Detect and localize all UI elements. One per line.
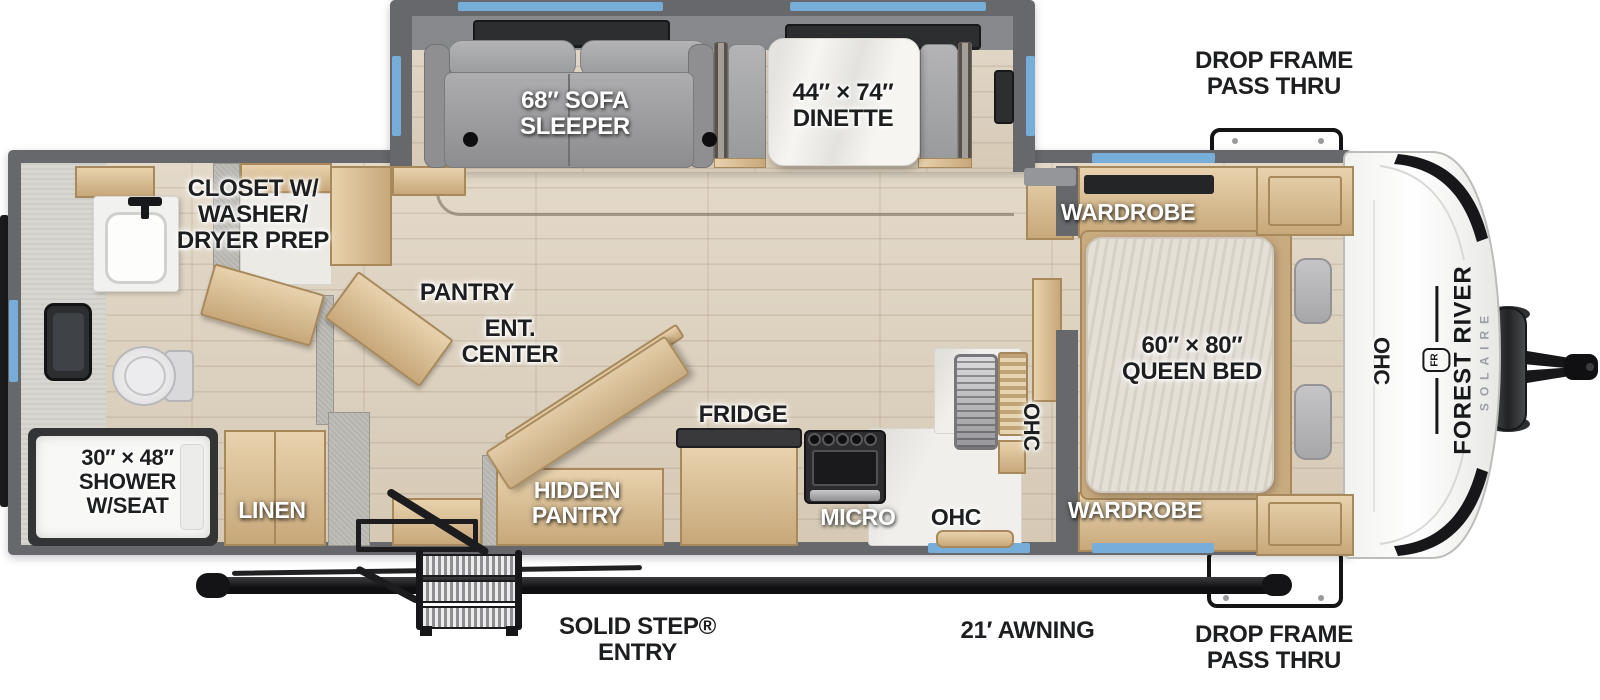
awning-end-cap-right — [1262, 574, 1292, 596]
ohc-vertical-text: OHC — [1369, 337, 1393, 385]
step-foot — [506, 626, 518, 636]
stove-burner-knob — [824, 435, 833, 444]
counter-tray — [936, 530, 1014, 548]
fridge-cabinet — [680, 446, 798, 546]
screw-icon — [1318, 595, 1324, 601]
brand-logo: FR FOREST RIVER SOLAIRE — [1422, 230, 1491, 490]
kitchen-sink — [954, 354, 998, 450]
screw-icon — [1223, 595, 1229, 601]
brand-make: FOREST RIVER — [1450, 230, 1475, 490]
stove-burner-knob — [810, 435, 819, 444]
dinette-bench-base — [918, 158, 972, 168]
label-drop-frame-bottom: DROP FRAME PASS THRU — [1154, 622, 1394, 674]
stove-burner-knob — [852, 435, 861, 444]
pillow — [1294, 384, 1332, 460]
label-wardrobe-bottom: WARDROBE — [1025, 498, 1245, 523]
label-fridge: FRIDGE — [663, 402, 823, 428]
overhead-cabinet — [392, 166, 466, 196]
ohc-vertical-text: OHC — [1019, 403, 1043, 451]
step-tread — [421, 554, 517, 577]
label-drop-frame-top: DROP FRAME PASS THRU — [1154, 48, 1394, 100]
step-tread — [421, 580, 517, 603]
window-rear-wall — [9, 300, 18, 382]
tv-bedroom — [1084, 175, 1214, 194]
dinette-bench-base — [714, 158, 766, 168]
label-queen-bed: 60″ × 80″ QUEEN BED — [1072, 333, 1312, 385]
label-wardrobe-top: WARDROBE — [1018, 200, 1238, 225]
awning-end-cap-left — [196, 573, 230, 598]
corner-wardrobe-door — [1268, 502, 1342, 546]
table-mount-dot — [702, 132, 717, 147]
screw-icon — [1232, 138, 1238, 144]
step-tread — [421, 606, 517, 629]
label-ohc-kitchen: OHC — [896, 505, 1016, 530]
stove-burner-knob — [866, 435, 875, 444]
pillow — [1294, 258, 1332, 324]
forest-river-badge-icon: FR — [1422, 348, 1450, 372]
toilet-seat — [124, 356, 166, 396]
linen-cabinet-seam — [274, 432, 276, 544]
floorplan-canvas: FR FOREST RIVER SOLAIRE DROP FRAME PASS … — [0, 0, 1600, 700]
awning-roller-bar — [205, 577, 1290, 594]
brand-rule — [1435, 378, 1438, 434]
label-dinette: 44″ × 74″ DINETTE — [723, 80, 963, 132]
bathroom-window-pane — [53, 313, 84, 371]
brand-model: SOLAIRE — [1478, 230, 1492, 490]
label-shower: 30″ × 48″ SHOWER W/SEAT — [40, 446, 215, 517]
slide-floor-seam — [436, 166, 1014, 216]
window-slide-right — [1026, 56, 1035, 136]
fridge-top — [676, 428, 802, 448]
oven-window — [812, 450, 878, 486]
label-awning: 21′ AWNING — [935, 618, 1120, 644]
label-pantry: PANTRY — [387, 280, 547, 306]
label-hidden-pantry: HIDDEN PANTRY — [497, 478, 657, 528]
overhead-cabinet-cap — [1024, 168, 1076, 186]
stove-burner-knob — [838, 435, 847, 444]
brand-rule — [1435, 286, 1438, 342]
solid-step-treads — [421, 554, 517, 632]
corner-wardrobe-door — [1268, 176, 1342, 226]
label-closet-washer-dryer: CLOSET W/ WASHER/ DRYER PREP — [143, 176, 363, 254]
screw-icon — [1318, 138, 1324, 144]
brand-rule-badge: FR — [1422, 230, 1450, 490]
label-linen: LINEN — [192, 498, 352, 523]
label-solid-step-entry: SOLID STEP® ENTRY — [545, 614, 730, 666]
tv-slide-right-wall — [994, 70, 1014, 124]
step-foot — [420, 626, 432, 636]
window-slide-left — [392, 56, 401, 136]
label-ent-center: ENT. CENTER — [430, 316, 590, 368]
window-slide-sofa — [458, 2, 663, 11]
window-slide-dinette — [790, 2, 986, 11]
label-sofa-sleeper: 68″ SOFA SLEEPER — [455, 88, 695, 140]
window-bedroom-top — [1092, 153, 1215, 163]
oven-drawer — [810, 490, 880, 501]
window-bedroom-bottom — [1092, 543, 1214, 553]
